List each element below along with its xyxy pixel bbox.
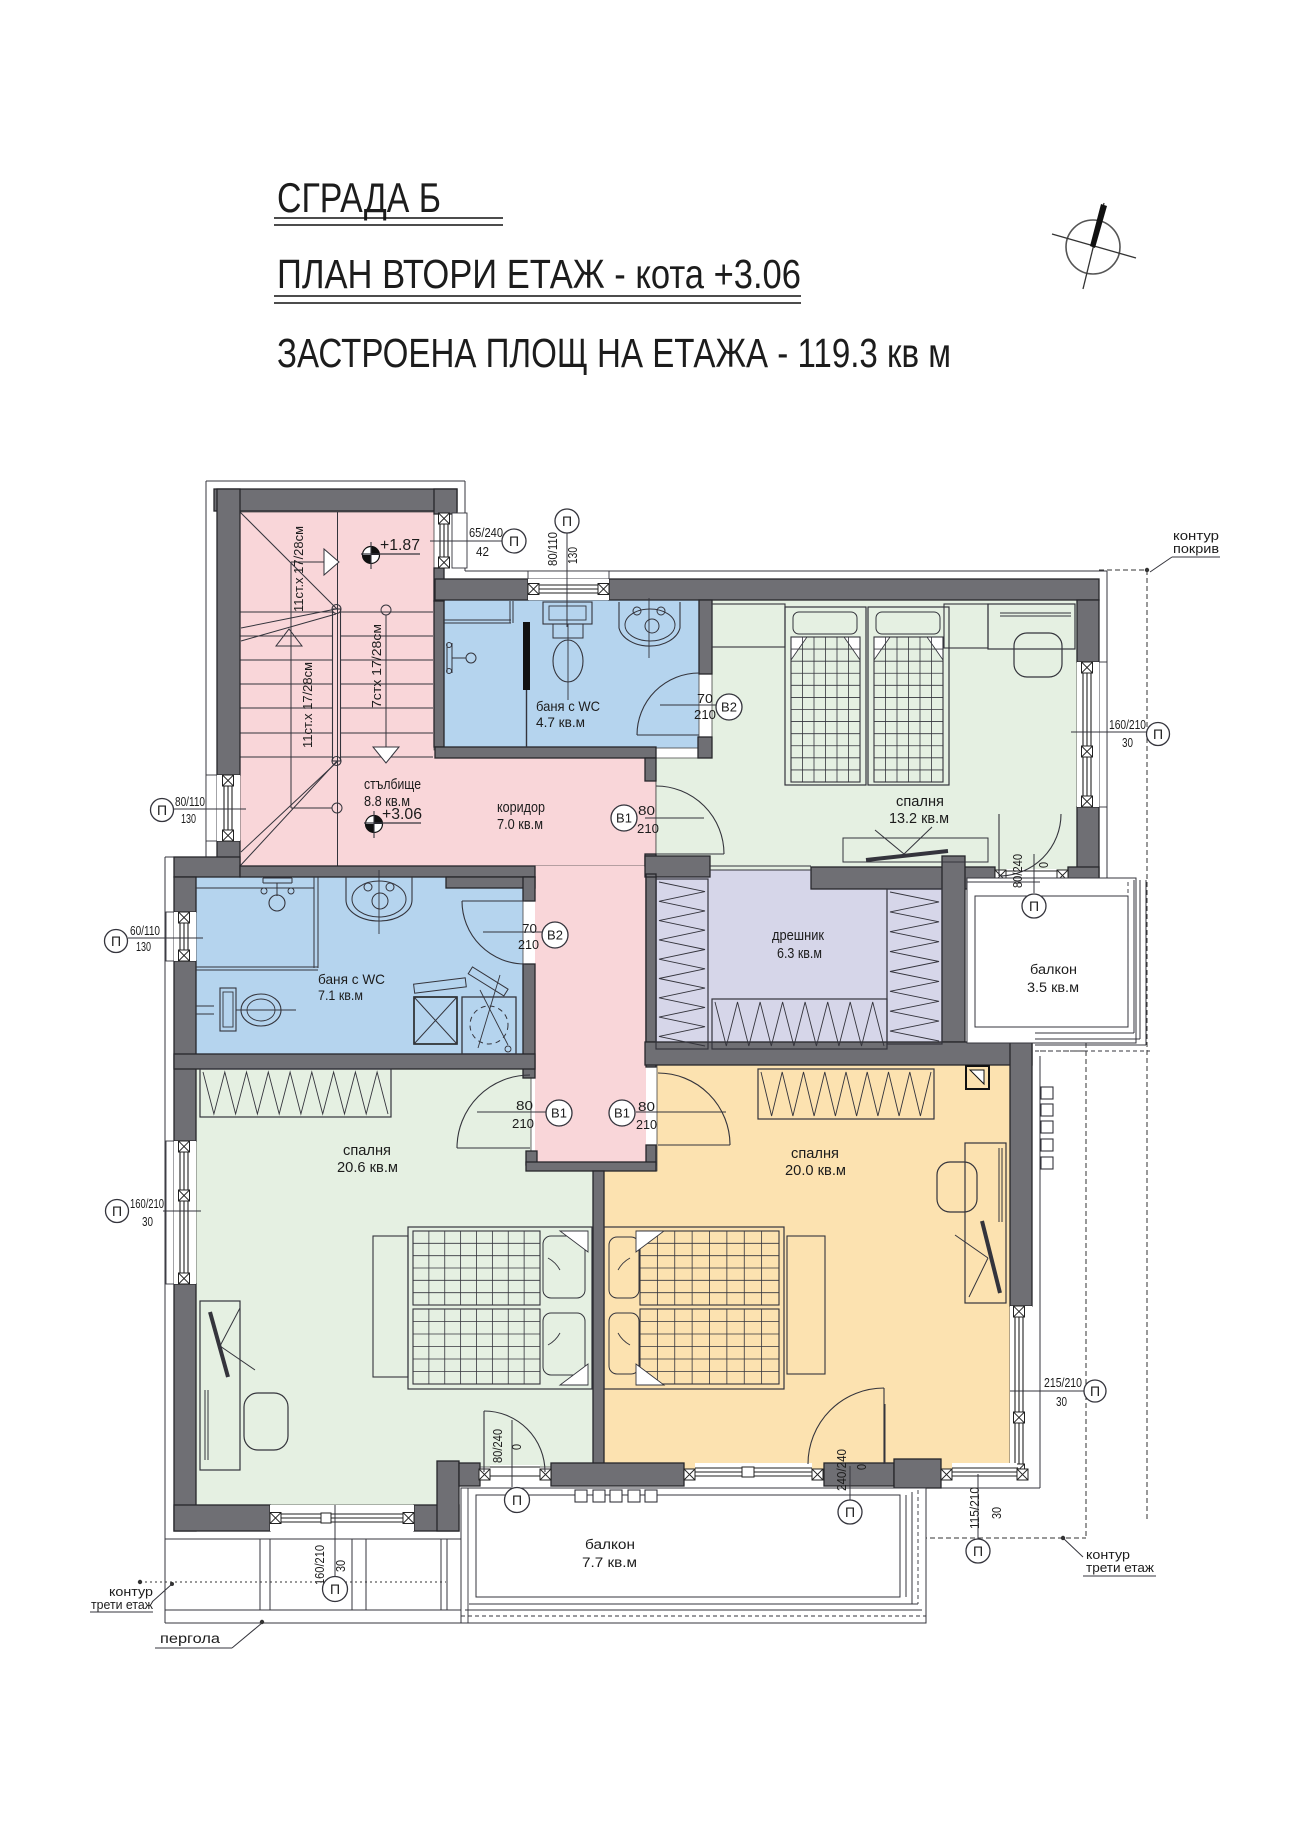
svg-text:8.8 кв.м: 8.8 кв.м: [364, 794, 410, 810]
svg-text:балкон: балкон: [585, 1537, 635, 1552]
svg-text:П: П: [509, 533, 519, 549]
svg-text:0: 0: [855, 1464, 869, 1470]
svg-text:ПЛАН ВТОРИ ЕТАЖ - кота +3.06: ПЛАН ВТОРИ ЕТАЖ - кота +3.06: [277, 251, 801, 297]
svg-text:210: 210: [637, 822, 659, 836]
svg-text:В1: В1: [551, 1106, 567, 1121]
svg-text:П: П: [157, 802, 167, 818]
svg-text:70: 70: [697, 692, 713, 706]
svg-text:60/110: 60/110: [130, 924, 160, 938]
svg-text:20.0 кв.м: 20.0 кв.м: [785, 1163, 846, 1179]
svg-text:спалня: спалня: [791, 1146, 839, 1162]
svg-text:7.0 кв.м: 7.0 кв.м: [497, 817, 543, 833]
svg-text:80/240: 80/240: [1011, 854, 1025, 888]
svg-text:215/210: 215/210: [1044, 1376, 1082, 1390]
svg-text:покрив: покрив: [1173, 542, 1219, 556]
svg-text:0: 0: [1037, 862, 1051, 868]
svg-text:контур: контур: [109, 1585, 153, 1599]
svg-text:+1.87: +1.87: [380, 537, 420, 554]
svg-text:210: 210: [518, 938, 539, 952]
svg-text:П: П: [1153, 726, 1163, 742]
svg-text:спалня: спалня: [343, 1143, 391, 1159]
svg-text:70: 70: [522, 922, 537, 936]
svg-text:160/210: 160/210: [130, 1197, 164, 1211]
svg-text:7.7 кв.м: 7.7 кв.м: [582, 1555, 637, 1570]
svg-text:В1: В1: [616, 811, 632, 826]
svg-text:баня с WC: баня с WC: [536, 698, 600, 714]
svg-text:СГРАДА Б: СГРАДА Б: [277, 174, 441, 221]
svg-text:7стх 17/28см: 7стх 17/28см: [370, 624, 384, 708]
svg-text:П: П: [1090, 1383, 1100, 1399]
svg-text:балкон: балкон: [1030, 962, 1077, 977]
svg-text:30: 30: [334, 1560, 348, 1572]
svg-text:трети етаж: трети етаж: [91, 1598, 154, 1612]
svg-text:130: 130: [136, 940, 151, 954]
svg-text:80/240: 80/240: [491, 1429, 505, 1463]
svg-text:65/240: 65/240: [469, 526, 503, 540]
svg-text:20.6 кв.м: 20.6 кв.м: [337, 1160, 398, 1176]
svg-text:11ст.х 17/28см: 11ст.х 17/28см: [301, 662, 315, 748]
svg-text:В2: В2: [547, 928, 563, 943]
svg-text:210: 210: [512, 1117, 534, 1131]
svg-text:П: П: [1029, 898, 1039, 914]
svg-text:13.2 кв.м: 13.2 кв.м: [889, 811, 949, 827]
svg-text:240/240: 240/240: [835, 1449, 849, 1491]
svg-text:80/110: 80/110: [546, 532, 560, 566]
svg-text:30: 30: [990, 1507, 1004, 1519]
svg-text:П: П: [330, 1581, 340, 1597]
svg-text:дрешник: дрешник: [772, 928, 825, 944]
svg-text:210: 210: [694, 708, 716, 722]
svg-text:3.5 кв.м: 3.5 кв.м: [1027, 980, 1079, 995]
svg-text:пергола: пергола: [160, 1631, 221, 1646]
svg-text:30: 30: [1056, 1395, 1067, 1409]
svg-text:160/210: 160/210: [313, 1545, 327, 1585]
svg-text:В2: В2: [721, 700, 737, 715]
svg-text:контур: контур: [1173, 529, 1219, 543]
svg-text:115/210: 115/210: [968, 1487, 982, 1529]
svg-text:4.7 кв.м: 4.7 кв.м: [536, 714, 585, 730]
svg-text:30: 30: [1122, 736, 1133, 750]
svg-text:210: 210: [636, 1118, 657, 1132]
svg-text:130: 130: [181, 812, 196, 826]
svg-text:коридор: коридор: [497, 800, 545, 816]
svg-text:П: П: [111, 933, 121, 949]
svg-text:спалня: спалня: [896, 794, 944, 810]
svg-text:6.3 кв.м: 6.3 кв.м: [777, 946, 822, 962]
svg-text:30: 30: [142, 1215, 153, 1229]
svg-text:П: П: [973, 1543, 983, 1559]
svg-text:80/110: 80/110: [175, 795, 205, 809]
svg-text:стълбище: стълбище: [364, 777, 421, 793]
svg-text:80: 80: [516, 1099, 533, 1113]
svg-text:11ст.х 17/28см: 11ст.х 17/28см: [292, 526, 306, 612]
svg-text:130: 130: [566, 547, 580, 564]
svg-text:контур: контур: [1086, 1548, 1130, 1562]
svg-text:80: 80: [638, 804, 655, 818]
svg-text:В1: В1: [614, 1106, 630, 1121]
svg-text:П: П: [845, 1504, 855, 1520]
svg-text:П: П: [562, 513, 572, 529]
svg-text:ЗАСТРОЕНА ПЛОЩ НА ЕТАЖА - 119.: ЗАСТРОЕНА ПЛОЩ НА ЕТАЖА - 119.3 кв м: [277, 330, 951, 376]
svg-text:П: П: [112, 1203, 122, 1219]
svg-text:160/210: 160/210: [1109, 718, 1146, 732]
svg-text:баня с WC: баня с WC: [318, 971, 385, 987]
svg-text:трети етаж: трети етаж: [1086, 1561, 1155, 1575]
svg-text:7.1 кв.м: 7.1 кв.м: [318, 987, 363, 1003]
svg-text:П: П: [512, 1492, 522, 1508]
svg-text:42: 42: [476, 545, 489, 559]
